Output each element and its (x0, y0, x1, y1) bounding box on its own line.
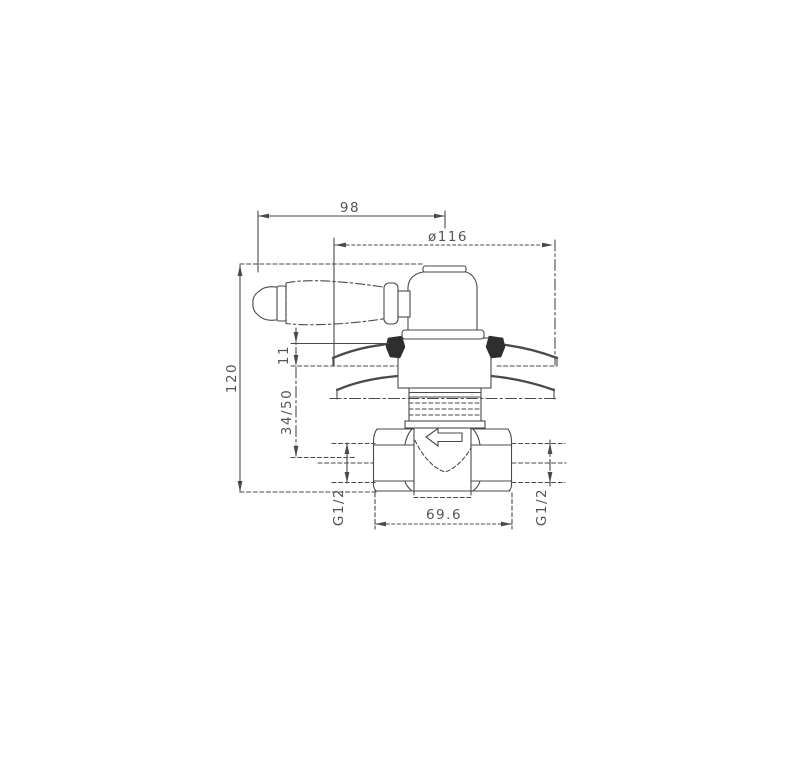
hex-nut-right (471, 429, 512, 491)
cartridge-dome-cap (402, 266, 484, 339)
arrowhead (345, 472, 350, 483)
dim-g12-left: G1/2 (331, 443, 375, 526)
dim-g12-right: G1/2 (512, 440, 565, 526)
handle-stem (398, 291, 410, 317)
dim-label-g12-right: G1/2 (534, 488, 550, 526)
handle-stem-ring (384, 283, 398, 324)
escutcheon-lower-right-arc (491, 376, 554, 390)
escutcheon-lower-left-arc (337, 376, 398, 390)
lever-handle (253, 281, 410, 325)
valve-body (318, 421, 566, 498)
dim-label-120: 120 (224, 363, 240, 393)
arrowhead (294, 446, 299, 457)
arrowhead (238, 265, 243, 276)
arrowhead (548, 443, 553, 454)
dim-98: 98 (258, 200, 445, 272)
valve-bonnet-block (398, 338, 491, 388)
arrowhead (238, 481, 243, 492)
dome-body (408, 272, 477, 331)
valve-top-plate (405, 421, 485, 428)
drawing-page: 98 ø116 120 11 (0, 0, 800, 769)
arrowhead (375, 522, 386, 527)
dome-base-flange (402, 330, 484, 339)
dim-label-11: 11 (276, 345, 292, 365)
dim-label-116: ø116 (428, 229, 468, 245)
arrowhead (335, 243, 346, 248)
technical-drawing-canvas: 98 ø116 120 11 (0, 0, 800, 769)
dim-label-34-50: 34/50 (279, 389, 295, 435)
handle-knob-collar (277, 286, 286, 321)
flow-direction-arrow-icon (426, 429, 462, 447)
hex-nut-left-silhouette (374, 429, 415, 491)
dim-69-6: 69.6 (375, 493, 512, 529)
arrowhead (294, 355, 299, 366)
arrowhead (294, 332, 299, 343)
arrowhead (258, 214, 269, 219)
escutcheon-upper-right-arc (497, 344, 557, 358)
dim-label-g12-left: G1/2 (331, 488, 347, 526)
dome-top-button (423, 266, 466, 272)
handle-lever-body (286, 281, 386, 325)
hex-nut-left (374, 429, 415, 491)
escutcheon-upper-left-arc (333, 344, 389, 358)
arrowhead (434, 214, 445, 219)
arrowhead (542, 243, 553, 248)
hex-nut-right-silhouette (471, 429, 512, 491)
arrowhead (548, 472, 553, 483)
arrowhead (501, 522, 512, 527)
dim-label-69-6: 69.6 (426, 507, 462, 523)
arrowhead (345, 443, 350, 454)
dim-label-98: 98 (340, 200, 360, 216)
